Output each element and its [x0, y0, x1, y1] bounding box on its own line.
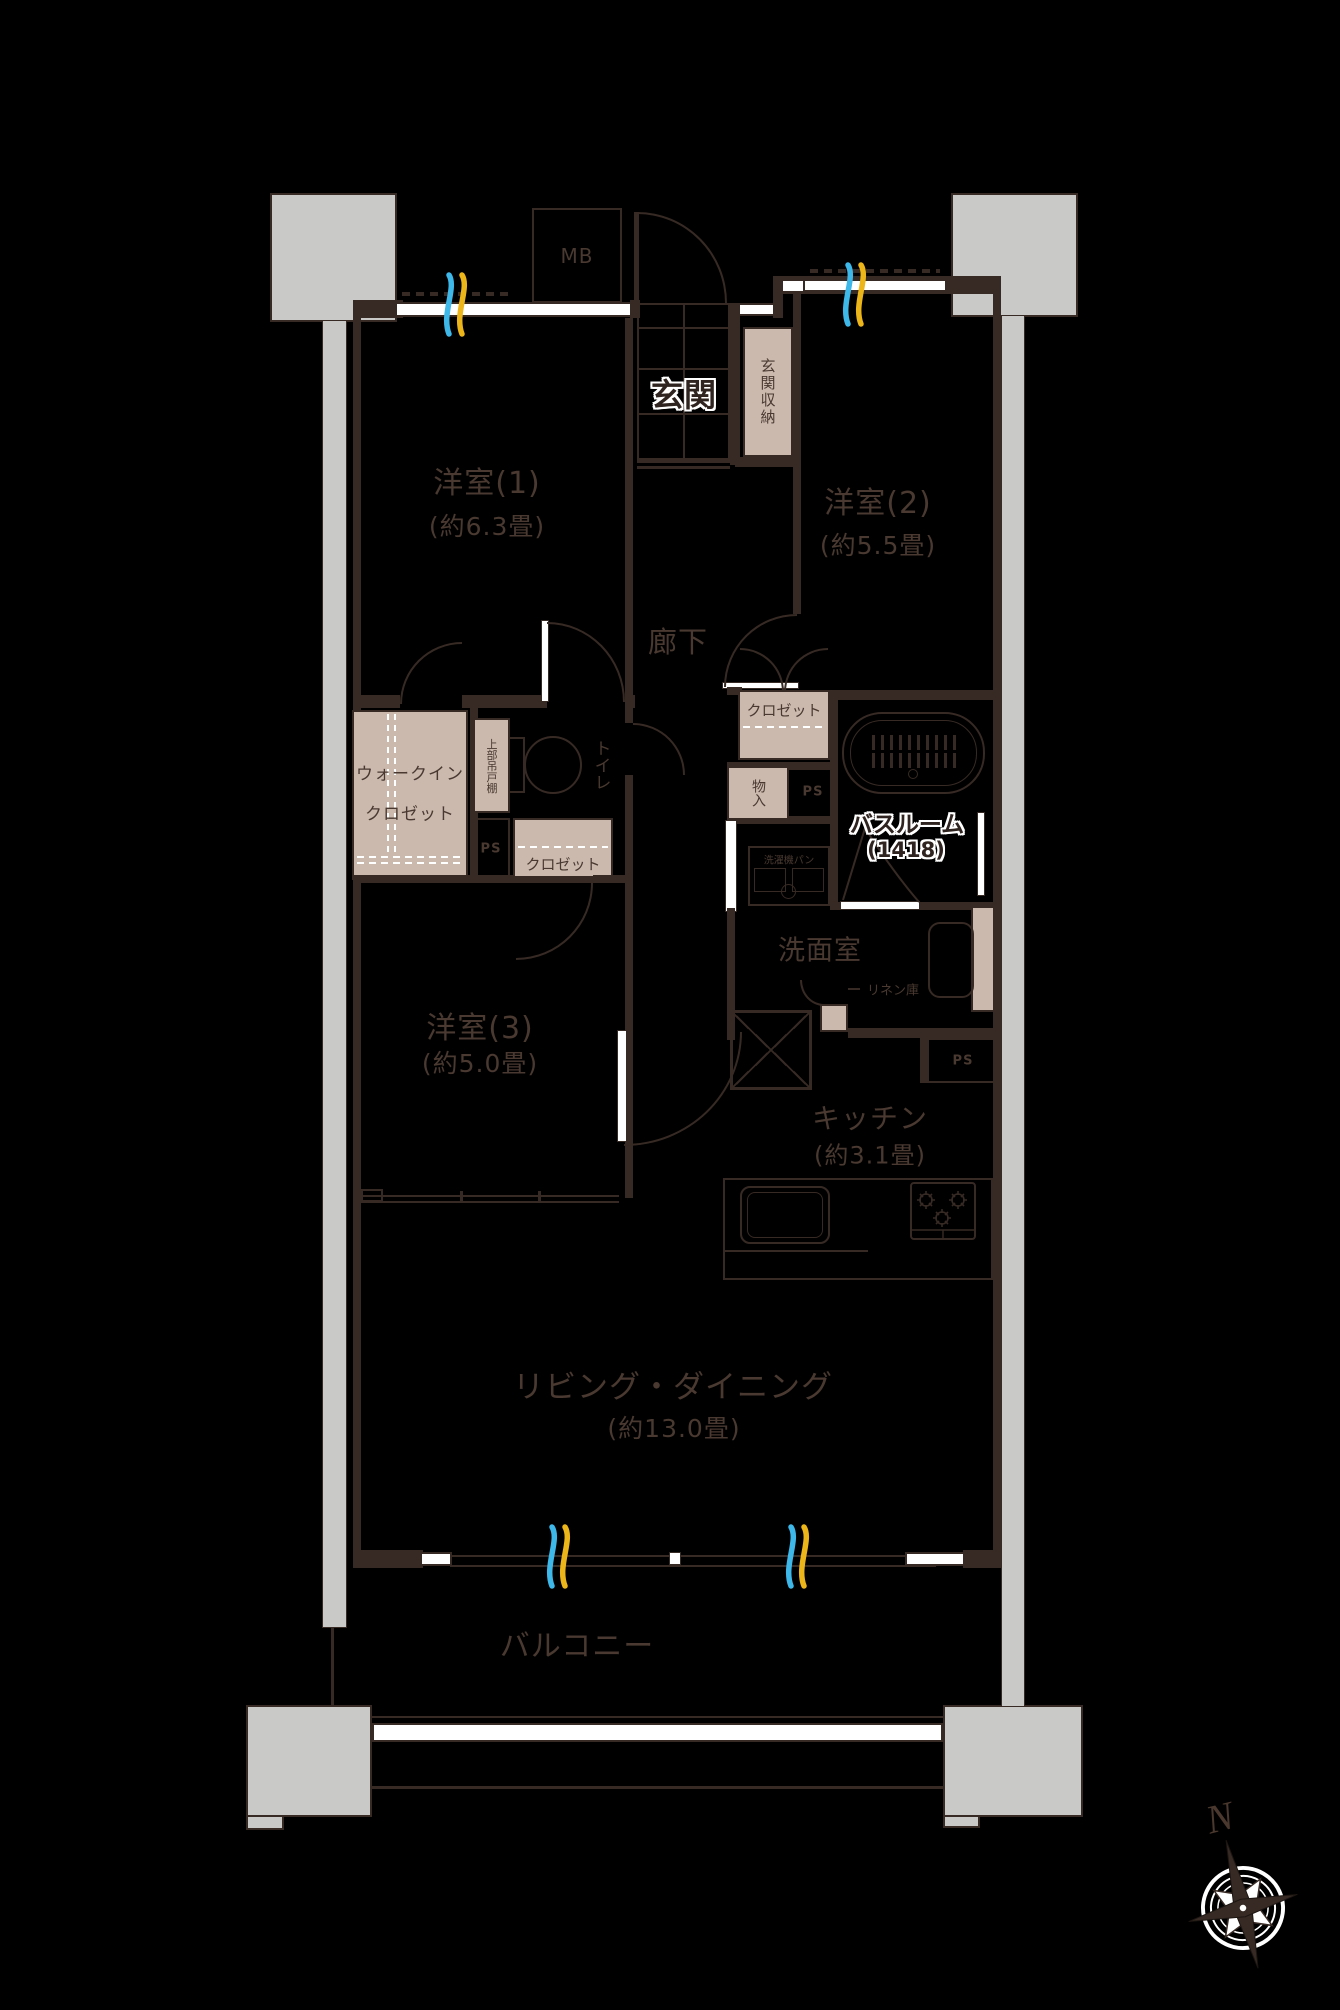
genkan-step-line	[637, 466, 730, 469]
upper-cabinet-label: 上部吊戸棚	[483, 739, 499, 794]
monoire-label: 物入	[748, 779, 768, 807]
genkan-step-line	[637, 458, 730, 461]
vanity-counter	[971, 906, 995, 1012]
wall-bath-north	[830, 690, 1001, 700]
wall-genkan-right	[730, 303, 740, 465]
west-wall-connector	[331, 1628, 334, 1706]
balcony-slab-line	[372, 1786, 943, 1789]
window-sill-room1	[395, 302, 635, 317]
balcony-label: バルコニー	[500, 1621, 654, 1665]
washroom-label: 洗面室	[778, 929, 862, 968]
airflow-window-icon	[441, 272, 473, 338]
wic-label-2: クロゼット	[365, 800, 455, 825]
bathroom-size: (1418)	[867, 838, 945, 862]
linen-box	[820, 1004, 848, 1032]
room1-size: (約6.3畳)	[429, 507, 545, 543]
ld-window-bottom	[450, 1565, 936, 1567]
airflow-window-icon	[544, 1524, 576, 1590]
pillar-top-right	[951, 193, 1078, 317]
wall-room2-west	[793, 294, 801, 614]
room3-partition-end	[361, 1189, 383, 1202]
west-exterior-wall	[322, 320, 347, 1628]
kitchen-label: キッチン	[812, 1097, 928, 1137]
airflow-window-icon	[840, 262, 872, 328]
wall-south-right	[963, 1550, 1001, 1568]
toilet-bowl	[524, 736, 582, 794]
linen-door-arc	[800, 980, 824, 1006]
closet-room2-label: クロゼット	[746, 700, 821, 721]
walk-in-closet-box	[352, 710, 468, 880]
refrigerator-space	[730, 1010, 812, 1090]
kitchen-size: (約3.1畳)	[814, 1136, 926, 1171]
washroom-sliding-door	[725, 820, 737, 912]
balcony-fence-top-line	[372, 1716, 943, 1718]
wall-corridor-west-a	[625, 318, 633, 723]
washer-pan-label: 洗濯機パン	[764, 852, 815, 867]
toilet-door-arc	[633, 723, 685, 775]
closet-room3-dash	[518, 846, 608, 848]
wall-kitchen-east-stub	[920, 1038, 928, 1083]
room3-partition-tick	[460, 1191, 463, 1202]
pillar-bottom-left-foot	[246, 1815, 284, 1830]
entrance-door-arc	[637, 212, 727, 303]
wic-dash-h	[357, 856, 464, 858]
wic-door-arc	[400, 642, 462, 704]
wall-room3-north-b	[593, 875, 633, 883]
kitchen-counter-edge	[723, 1250, 868, 1252]
pillar-bottom-right	[943, 1705, 1083, 1817]
washer-pan-inner	[792, 868, 824, 892]
genkan-label: 玄関	[651, 370, 717, 416]
linen-leader-line	[848, 988, 860, 990]
closet-room3-label: クロゼット	[525, 854, 600, 875]
washer-pan-drain	[781, 884, 796, 899]
ld-window-top	[450, 1555, 936, 1557]
room3-label: 洋室(3)	[426, 1003, 534, 1047]
ld-door-arc	[624, 1032, 742, 1146]
compass-north-icon: N	[1165, 1790, 1325, 2000]
room2-size: (約5.5畳)	[820, 526, 936, 562]
wall-room3-north-a	[353, 875, 513, 883]
room1-door-arc	[547, 622, 625, 702]
pillar-bottom-right-foot	[943, 1815, 980, 1828]
living-dining-size: (約13.0畳)	[607, 1409, 740, 1445]
corridor-label: 廊下	[648, 619, 708, 661]
airflow-window-icon	[783, 1524, 815, 1590]
toilet-tank	[508, 737, 525, 793]
room3-partition-tick	[538, 1191, 541, 1202]
window-dash-room2	[810, 269, 940, 273]
window-sill-room2	[803, 279, 947, 292]
toilet-label: トイレ	[589, 740, 614, 791]
ps-label-kitchen: PS	[953, 1054, 974, 1069]
ld-window-mullion	[669, 1552, 681, 1565]
room3-partition-line	[361, 1195, 619, 1197]
living-dining-label: リビング・ダイニング	[513, 1362, 833, 1407]
meter-box-label: MB	[561, 244, 594, 268]
pillar-bottom-left	[246, 1705, 372, 1817]
wall-below-storage	[735, 457, 795, 467]
vanity-bowl	[928, 922, 974, 998]
bathtub-drain	[908, 769, 918, 779]
compass-n-letter: N	[1200, 1792, 1240, 1843]
room1-label: 洋室(1)	[433, 458, 541, 502]
genkan-storage-label: 玄関収納	[758, 358, 779, 426]
linen-label: リネン庫	[867, 980, 919, 999]
bathtub-pattern	[872, 753, 956, 768]
bathtub-pattern	[872, 735, 956, 750]
room3-door-arc	[516, 883, 593, 960]
balcony-fence-band	[372, 1723, 943, 1742]
wic-label-1: ウォークイン	[356, 760, 464, 785]
ps-label-mid: PS	[803, 785, 824, 800]
bathroom-label: バスルーム	[850, 805, 964, 839]
room2-label: 洋室(2)	[824, 478, 932, 522]
floor-plan: 玄関収納 MB 上部吊戸棚 トイレ PS ウォークイン クロゼット クロゼット	[0, 0, 1340, 2010]
wall-south-left	[353, 1550, 423, 1568]
ps-label-west: PS	[481, 842, 502, 857]
wall-room1-south-a	[353, 695, 400, 708]
room3-size: (約5.0畳)	[422, 1044, 538, 1080]
sill-south-east	[905, 1552, 967, 1566]
kitchen-sink-inner	[747, 1192, 823, 1238]
shower-bar	[977, 812, 985, 896]
wall-west	[353, 300, 361, 1568]
room3-partition-line	[361, 1201, 619, 1203]
gas-stove-burners-icon	[910, 1182, 976, 1240]
wall-washroom-south	[848, 1028, 1001, 1038]
sill-south-west	[420, 1552, 452, 1566]
wic-dash-h	[357, 862, 464, 864]
closet-room2-dash	[743, 726, 825, 728]
east-exterior-wall	[1001, 315, 1025, 1707]
